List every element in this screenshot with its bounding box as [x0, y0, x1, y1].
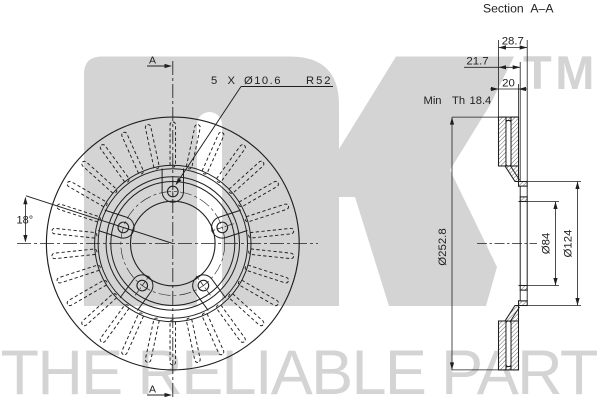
svg-text:20: 20 [502, 78, 515, 90]
svg-text:MinTh18.4: MinTh18.4 [424, 95, 492, 107]
svg-text:TM: TM [523, 46, 598, 99]
svg-text:Section A–A: Section A–A [483, 2, 554, 16]
svg-text:18°: 18° [17, 215, 34, 227]
svg-text:A: A [149, 384, 156, 396]
svg-text:A: A [149, 55, 156, 67]
svg-text:Ø124: Ø124 [563, 230, 575, 258]
svg-text:21.7: 21.7 [466, 56, 488, 68]
svg-text:Ø84: Ø84 [541, 233, 553, 255]
svg-text:Ø252.8: Ø252.8 [437, 228, 449, 265]
svg-text:5XØ10.6R52: 5XØ10.6R52 [211, 75, 333, 87]
